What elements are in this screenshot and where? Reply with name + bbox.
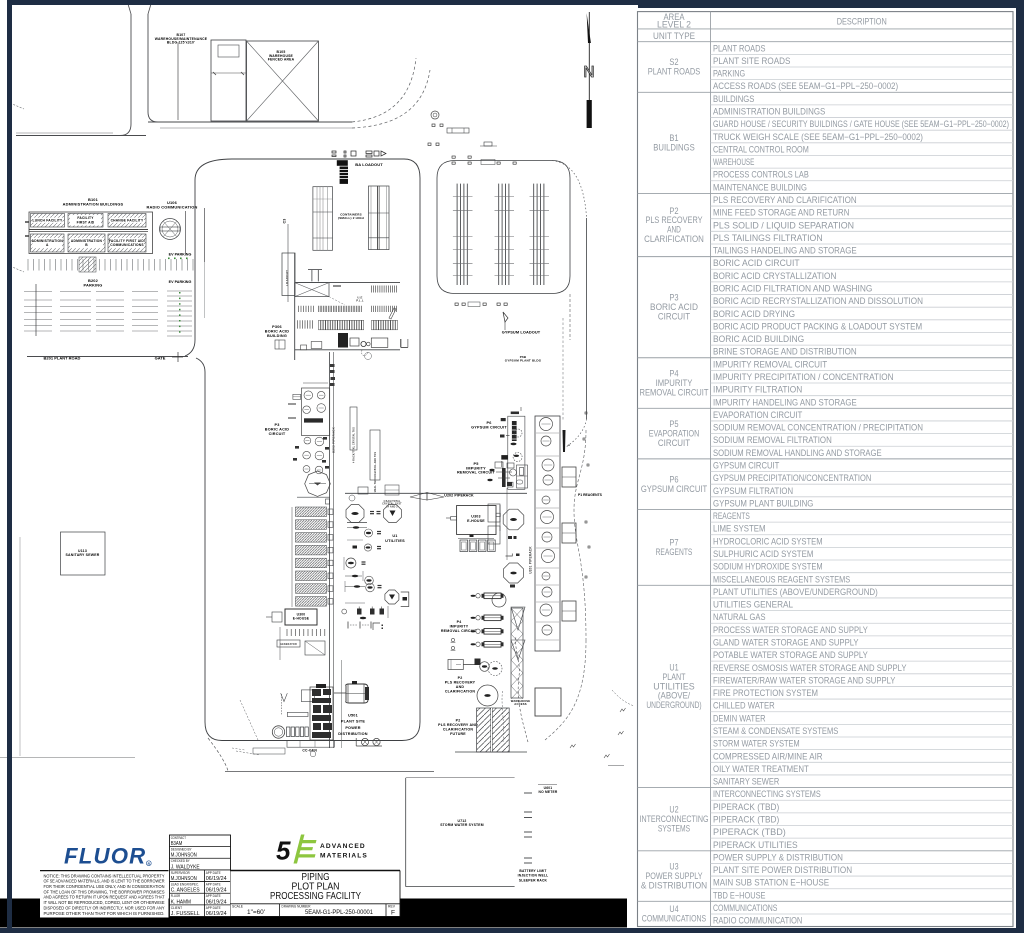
svg-text:PLANT UTILITIES (ABOVE/UNDERGR: PLANT UTILITIES (ABOVE/UNDERGROUND) <box>713 587 878 597</box>
svg-text:DISPOSED OF DIRECTLY OR INDIRE: DISPOSED OF DIRECTLY OR INDIRECTLY, NOR … <box>44 905 165 910</box>
svg-text:CLIENT: CLIENT <box>171 906 183 910</box>
svg-text:PLANT SITE ROADS: PLANT SITE ROADS <box>713 56 790 66</box>
svg-text:GYPSUM PRECIPITATION/CONCENTRA: GYPSUM PRECIPITATION/CONCENTRATION <box>713 473 871 483</box>
svg-text:CHANGE FACILITY: CHANGE FACILITY <box>111 218 144 222</box>
svg-text:ADVANCED: ADVANCED <box>320 843 366 850</box>
svg-text:P306: P306 <box>272 325 282 329</box>
svg-text:SODIUM HYDROXIDE SYSTEM: SODIUM HYDROXIDE SYSTEM <box>713 562 823 572</box>
svg-text:UTILITIES: UTILITIES <box>385 539 405 543</box>
svg-text:06/19/24: 06/19/24 <box>206 899 227 905</box>
svg-text:GYPSUM LOADOUT: GYPSUM LOADOUT <box>502 330 541 335</box>
svg-text:FENCED AREA: FENCED AREA <box>268 58 295 62</box>
svg-text:APP DATE: APP DATE <box>206 894 222 898</box>
svg-text:REMOVAL CIRCUIT: REMOVAL CIRCUIT <box>457 471 496 475</box>
svg-text:FIREWATER/RAW WATER STORAGE AN: FIREWATER/RAW WATER STORAGE AND SUPPLY <box>713 675 895 685</box>
svg-text:P2: P2 <box>456 719 461 723</box>
svg-text:PROCESS WATER STORAGE AND SUPP: PROCESS WATER STORAGE AND SUPPLY <box>713 625 868 635</box>
svg-text:FOR THEIR CONFIDENTIAL USE ONL: FOR THEIR CONFIDENTIAL USE ONLY, AND IN … <box>44 884 165 889</box>
svg-text:POWER SUPPLY & DISTRIBUTION: POWER SUPPLY & DISTRIBUTION <box>713 852 843 862</box>
svg-text:FLUOR: FLUOR <box>171 894 181 898</box>
svg-text:CLARIFICATION: CLARIFICATION <box>644 234 704 244</box>
svg-text:C3: C3 <box>283 219 287 224</box>
svg-text:BORIC ACID CIRCUIT: BORIC ACID CIRCUIT <box>713 258 800 268</box>
svg-text:POWER: POWER <box>345 726 360 730</box>
svg-text:DRAWING NUMBER: DRAWING NUMBER <box>282 905 311 909</box>
svg-text:P.L.L: P.L.L <box>356 299 364 303</box>
svg-text:4 BAG/TOTAL: 4 BAG/TOTAL <box>383 500 401 503</box>
svg-text:BORIC ACID FILTRATION AND WASH: BORIC ACID FILTRATION AND WASHING <box>713 284 872 294</box>
svg-text:C. ANGELES: C. ANGELES <box>171 888 200 894</box>
svg-text:06/19/24: 06/19/24 <box>206 888 227 894</box>
svg-text:COMMUNICATIONS: COMMUNICATIONS <box>642 914 706 924</box>
svg-text:INJECTION WELL: INJECTION WELL <box>518 874 549 878</box>
svg-text:4 RACK/TTKL CRYSTAL TKS: 4 RACK/TTKL CRYSTAL TKS <box>353 427 356 463</box>
svg-text:M.JOHNSON: M.JOHNSON <box>171 853 197 859</box>
svg-text:LIME SYSTEM: LIME SYSTEM <box>713 524 766 534</box>
svg-text:1"=60': 1"=60' <box>247 909 265 916</box>
svg-text:SYSTEMS: SYSTEMS <box>658 823 690 833</box>
svg-text:BRINE STORAGE AND DISTRIBUTION: BRINE STORAGE AND DISTRIBUTION <box>713 347 857 357</box>
svg-text:COMPRESSED AIR/MINE AIR: COMPRESSED AIR/MINE AIR <box>713 751 823 761</box>
svg-text:BORIC ACID DRYING: BORIC ACID DRYING <box>713 309 795 319</box>
svg-text:TAILINGS HANDELING AND STORAGE: TAILINGS HANDELING AND STORAGE <box>713 246 857 256</box>
svg-text:E-HOUSE: E-HOUSE <box>467 519 485 523</box>
svg-text:CHILLED WATER: CHILLED WATER <box>713 701 775 711</box>
svg-text:OF THE LOAN OF THIS DRAWING, T: OF THE LOAN OF THIS DRAWING, THE BORROWE… <box>44 889 165 894</box>
svg-text:U303: U303 <box>471 515 480 519</box>
svg-text:BORIC ACID CRYSTALLIZATION: BORIC ACID CRYSTALLIZATION <box>713 271 836 281</box>
svg-text:OILY WATER TREATMENT: OILY WATER TREATMENT <box>713 764 809 774</box>
svg-text:BORIC ACID PRODUCT PACKING & L: BORIC ACID PRODUCT PACKING & LOADOUT SYS… <box>713 321 922 331</box>
svg-text:CLARIFICATION: CLARIFICATION <box>445 690 475 694</box>
svg-text:PLANT SITE POWER DISTRIBUTION: PLANT SITE POWER DISTRIBUTION <box>713 865 852 875</box>
svg-text:EV PARKING: EV PARKING <box>169 280 192 284</box>
svg-text:06/19/24: 06/19/24 <box>206 911 227 917</box>
svg-text:MATERIALS: MATERIALS <box>320 853 368 860</box>
svg-text:AND: AND <box>456 685 465 689</box>
svg-text:SLEEPER RACK: SLEEPER RACK <box>519 878 548 882</box>
svg-text:U202 PIPERACK: U202 PIPERACK <box>444 494 474 498</box>
svg-text:TBD E−HOUSE: TBD E−HOUSE <box>713 890 766 900</box>
svg-text:GUARD HOUSE / SECURITY BUILDIN: GUARD HOUSE / SECURITY BUILDINGS / GATE … <box>713 119 1009 129</box>
svg-text:B3AM: B3AM <box>171 841 183 847</box>
svg-text:TRUCK WEIGH SCALE (SEE 5EAM−G1: TRUCK WEIGH SCALE (SEE 5EAM−G1−PPL−250−0… <box>713 132 923 142</box>
svg-text:BORIC ACID BUILDING: BORIC ACID BUILDING <box>713 334 804 344</box>
svg-text:5: 5 <box>276 836 291 866</box>
svg-text:CIRCUIT: CIRCUIT <box>269 432 286 436</box>
svg-text:w: w <box>568 444 571 447</box>
svg-text:ACCESS ROADS (SEE 5EAM−G1−PPL−: ACCESS ROADS (SEE 5EAM−G1−PPL−250−0002) <box>713 81 898 91</box>
svg-text:BUILDINGS: BUILDINGS <box>713 94 754 104</box>
svg-text:SODIUM REMOVAL HANDLING AND ST: SODIUM REMOVAL HANDLING AND STORAGE <box>713 448 882 458</box>
svg-text:MAIN SUB STATION E−HOUSE: MAIN SUB STATION E−HOUSE <box>713 878 829 888</box>
svg-text:P2: P2 <box>458 676 463 680</box>
svg-text:SODIUM REMOVAL FILTRATION: SODIUM REMOVAL FILTRATION <box>713 435 832 445</box>
svg-text:F: F <box>391 910 395 917</box>
svg-text:REAGENTS: REAGENTS <box>656 547 693 557</box>
svg-text:FIRE PROTECTION SYSTEM: FIRE PROTECTION SYSTEM <box>713 688 818 698</box>
svg-text:GYPSUM FILTRATION: GYPSUM FILTRATION <box>713 486 793 496</box>
svg-text:FLUOR: FLUOR <box>64 844 146 869</box>
svg-text:ADMINISTRATION BUILDINGS: ADMINISTRATION BUILDINGS <box>713 107 825 117</box>
svg-text:PIPERACK (TBD): PIPERACK (TBD) <box>713 827 786 837</box>
svg-text:P4: P4 <box>457 620 462 624</box>
svg-text:APP DATE: APP DATE <box>206 906 222 910</box>
svg-text:IMPURITY REMOVAL CIRCUIT: IMPURITY REMOVAL CIRCUIT <box>713 359 828 369</box>
svg-text:UNDERGROUND): UNDERGROUND) <box>646 700 701 710</box>
svg-text:P3: P3 <box>274 423 279 427</box>
svg-text:J. FUSSELL: J. FUSSELL <box>171 911 200 917</box>
svg-text:FUTURE: FUTURE <box>450 732 466 736</box>
svg-text:SUPERVISOR: SUPERVISOR <box>171 871 190 875</box>
svg-text:RADIO COMMUNICATION: RADIO COMMUNICATION <box>713 916 802 926</box>
svg-text:M.JOHNSON: M.JOHNSON <box>171 876 197 882</box>
svg-text:BORIC ACID: BORIC ACID <box>265 427 289 431</box>
svg-text:REVERSE OSMOSIS WATER STORAGE: REVERSE OSMOSIS WATER STORAGE AND SUPPLY <box>713 663 907 673</box>
svg-text:NO METER: NO METER <box>538 790 557 794</box>
svg-text:APP DATE: APP DATE <box>206 882 222 886</box>
svg-text:PLS TAILINGS FILTRATION: PLS TAILINGS FILTRATION <box>713 233 823 243</box>
svg-text:AND AGREES TO RETURN IT UPON R: AND AGREES TO RETURN IT UPON REQUEST AND… <box>44 895 165 900</box>
svg-text:PARKING: PARKING <box>713 69 745 79</box>
svg-text:LEAD ENGR/SPEC.: LEAD ENGR/SPEC. <box>171 882 200 886</box>
svg-text:GYPSUM PLANT BLDG: GYPSUM PLANT BLDG <box>505 359 542 363</box>
svg-text:PARKING: PARKING <box>83 282 102 287</box>
svg-text:06/19/24: 06/19/24 <box>206 876 227 882</box>
svg-text:IT WILL NOT BE REPRODUCED, COP: IT WILL NOT BE REPRODUCED, COPIED, LENT … <box>44 900 165 905</box>
svg-text:LEVEL 2: LEVEL 2 <box>657 20 691 30</box>
svg-text:STEAM & CONDENSATE SYSTEMS: STEAM & CONDENSATE SYSTEMS <box>713 726 838 736</box>
svg-text:GATE: GATE <box>155 356 166 361</box>
svg-text:B: B <box>85 243 88 247</box>
svg-text:GYPSUM CIRCUIT: GYPSUM CIRCUIT <box>713 461 780 471</box>
svg-text:IMPURITY FILTRATION: IMPURITY FILTRATION <box>713 385 802 395</box>
svg-text:U1: U1 <box>392 534 397 538</box>
svg-text:CONTRACT: CONTRACT <box>171 836 187 840</box>
svg-text:GENERATOR: GENERATOR <box>280 643 297 646</box>
svg-text:NOTICE: THIS DRAWING CONTAINS: NOTICE: THIS DRAWING CONTAINS INTELLECTU… <box>44 873 165 878</box>
svg-text:IMPURITY: IMPURITY <box>450 625 469 629</box>
svg-text:BUILDING: BUILDING <box>267 334 287 338</box>
svg-text:STORM WATER SYSTEM: STORM WATER SYSTEM <box>440 823 484 827</box>
svg-text:PLS RECOVERY AND: PLS RECOVERY AND <box>438 723 478 727</box>
svg-text:BLDG 125'x310': BLDG 125'x310' <box>167 41 195 45</box>
svg-text:PURPOSE OTHER THAN THAT FOR WH: PURPOSE OTHER THAN THAT FOR WHICH IS FUR… <box>44 911 165 916</box>
svg-text:ADMINISTRATION BUILDINGS: ADMINISTRATION BUILDINGS <box>63 201 124 206</box>
svg-text:PIPERACK (TBD): PIPERACK (TBD) <box>713 802 779 812</box>
svg-text:P1 REAGENTS: P1 REAGENTS <box>578 493 603 497</box>
svg-text:OF 5E ADVANCED MATERIALS, AND: OF 5E ADVANCED MATERIALS, AND IS LENT TO… <box>44 879 166 884</box>
svg-text:PLS RECOVERY: PLS RECOVERY <box>445 681 476 685</box>
svg-text:RADIO COMMUNICATION: RADIO COMMUNICATION <box>146 204 197 209</box>
svg-text:DESCRIPTION: DESCRIPTION <box>837 16 887 26</box>
svg-text:GLAND WATER STORAGE AND SUPPLY: GLAND WATER STORAGE AND SUPPLY <box>713 637 859 647</box>
svg-text:CIRCUIT: CIRCUIT <box>658 438 691 448</box>
svg-text:GYPSUM CIRCUIT: GYPSUM CIRCUIT <box>641 484 708 494</box>
svg-text:COMMUNICATIONS: COMMUNICATIONS <box>110 243 144 247</box>
svg-text:U501: U501 <box>348 714 358 718</box>
svg-text:B201 PLANT ROAD: B201 PLANT ROAD <box>44 356 81 361</box>
svg-text:INTERCONNECTING SYSTEMS: INTERCONNECTING SYSTEMS <box>713 789 821 799</box>
svg-text:PLANT ROADS: PLANT ROADS <box>648 67 701 77</box>
svg-text:N: N <box>583 64 594 81</box>
svg-text:MAINTENANCE BUILDING: MAINTENANCE BUILDING <box>713 182 807 192</box>
svg-text:PIPERACK (TBD): PIPERACK (TBD) <box>713 814 779 824</box>
svg-text:SCALE: SCALE <box>232 905 244 909</box>
svg-text:STORM WATER SYSTEM: STORM WATER SYSTEM <box>713 739 800 749</box>
svg-text:FIRST AID: FIRST AID <box>77 220 95 224</box>
svg-text:NATURAL GAS: NATURAL GAS <box>713 612 766 622</box>
svg-text:CLARIFICATION: CLARIFICATION <box>443 728 473 732</box>
svg-text:(SMALL) 2 HIGH: (SMALL) 2 HIGH <box>338 216 364 220</box>
svg-text:CIRCUIT: CIRCUIT <box>658 311 691 321</box>
svg-text:5EAM-G1-PPL-250-00001: 5EAM-G1-PPL-250-00001 <box>305 909 373 916</box>
svg-text:BA LOADOUT: BA LOADOUT <box>355 162 383 167</box>
svg-text:IMPURITY HANDELING AND STORAGE: IMPURITY HANDELING AND STORAGE <box>713 397 857 407</box>
svg-text:COMMUNICATIONS: COMMUNICATIONS <box>713 903 777 913</box>
svg-text:HYDROCLORIC ACID SYSTEM: HYDROCLORIC ACID SYSTEM <box>713 536 823 546</box>
svg-text:PROCESSING FACILITY: PROCESSING FACILITY <box>270 891 361 902</box>
svg-text:POTABLE WATER STORAGE AND SUPP: POTABLE WATER STORAGE AND SUPPLY <box>713 650 868 660</box>
svg-text:UNIT TYPE: UNIT TYPE <box>653 31 695 41</box>
svg-text:IMPURITY PRECIPITATION / CONCE: IMPURITY PRECIPITATION / CONCENTRATION <box>713 372 894 382</box>
svg-text:APP DATE: APP DATE <box>206 871 222 875</box>
svg-text:PLS SOLID / LIQUID SEPARATION: PLS SOLID / LIQUID SEPARATION <box>713 220 854 230</box>
svg-text:UTILITIES GENERAL: UTILITIES GENERAL <box>713 600 793 610</box>
svg-text:GYPSUM PLANT BUILDING: GYPSUM PLANT BUILDING <box>713 498 813 508</box>
svg-text:& DISTRIBUTION: & DISTRIBUTION <box>641 880 707 890</box>
svg-text:U203 PIPERACK: U203 PIPERACK <box>332 426 336 453</box>
svg-text:J. WALDYKE: J. WALDYKE <box>171 864 200 870</box>
svg-text:U201 PIPERACK: U201 PIPERACK <box>529 546 533 574</box>
svg-text:BUILDINGS: BUILDINGS <box>653 142 694 152</box>
svg-text:PROCESS CONTROLS LAB: PROCESS CONTROLS LAB <box>713 170 809 180</box>
svg-text:BATTERY LIMIT: BATTERY LIMIT <box>519 869 546 873</box>
svg-text:WAREHOUSE: WAREHOUSE <box>713 157 754 167</box>
svg-text:REV: REV <box>388 905 396 909</box>
svg-text:URAL THROUGH BOIL AND TKS: URAL THROUGH BOIL AND TKS <box>374 452 377 493</box>
svg-text:SANITARY SEWER: SANITARY SEWER <box>713 777 780 787</box>
svg-text:PLANT ROADS: PLANT ROADS <box>713 43 766 53</box>
svg-text:BORIC ACID: BORIC ACID <box>265 329 289 333</box>
svg-text:ACCESS: ACCESS <box>514 702 526 706</box>
svg-text:EV PARKING: EV PARKING <box>169 253 192 257</box>
svg-text:GYPSUM CIRCUIT: GYPSUM CIRCUIT <box>471 425 507 429</box>
svg-text:PIPERACK UTILITIES: PIPERACK UTILITIES <box>713 840 798 850</box>
svg-text:PLANT SITE: PLANT SITE <box>341 720 365 724</box>
svg-text:EVAPORATION CIRCUIT: EVAPORATION CIRCUIT <box>713 410 803 420</box>
svg-text:PLS RECOVERY AND CLARIFICATION: PLS RECOVERY AND CLARIFICATION <box>713 195 857 205</box>
svg-text:CENTRAL CONTROL ROOM: CENTRAL CONTROL ROOM <box>713 144 809 154</box>
svg-text:MISCELLANEOUS REAGENT SYSTEMS: MISCELLANEOUS REAGENT SYSTEMS <box>713 574 850 584</box>
svg-text:E-HOUSE: E-HOUSE <box>293 616 310 620</box>
svg-text:LUNCH FACILITY: LUNCH FACILITY <box>33 218 64 222</box>
svg-text:SODIUM REMOVAL CONCENTRATION /: SODIUM REMOVAL CONCENTRATION / PRECIPITA… <box>713 423 923 433</box>
svg-text:SULPHURIC ACID SYSTEM: SULPHURIC ACID SYSTEM <box>713 549 813 559</box>
svg-text:K. HAMM: K. HAMM <box>171 899 192 905</box>
svg-text:BORIC ACID RECRYSTALLIZATION A: BORIC ACID RECRYSTALLIZATION AND DISSOLU… <box>713 296 923 306</box>
svg-text:MINE FEED STORAGE AND RETURN: MINE FEED STORAGE AND RETURN <box>713 208 849 218</box>
svg-text:A: A <box>46 243 49 247</box>
svg-text:SANITARY SEWER: SANITARY SEWER <box>65 553 99 557</box>
svg-text:DISTRIBUTION: DISTRIBUTION <box>338 732 367 736</box>
svg-text:DEMIN WATER: DEMIN WATER <box>713 713 766 723</box>
svg-text:LOADOUT: LOADOUT <box>285 270 289 286</box>
svg-text:14 AND 2: 14 AND 2 <box>386 505 398 508</box>
svg-text:CHECKED BY: CHECKED BY <box>171 859 190 863</box>
svg-text:REAGENTS: REAGENTS <box>713 511 750 521</box>
svg-text:REMOVAL CIRCUIT: REMOVAL CIRCUIT <box>640 387 709 397</box>
svg-text:DESIGNED BY: DESIGNED BY <box>171 848 192 852</box>
